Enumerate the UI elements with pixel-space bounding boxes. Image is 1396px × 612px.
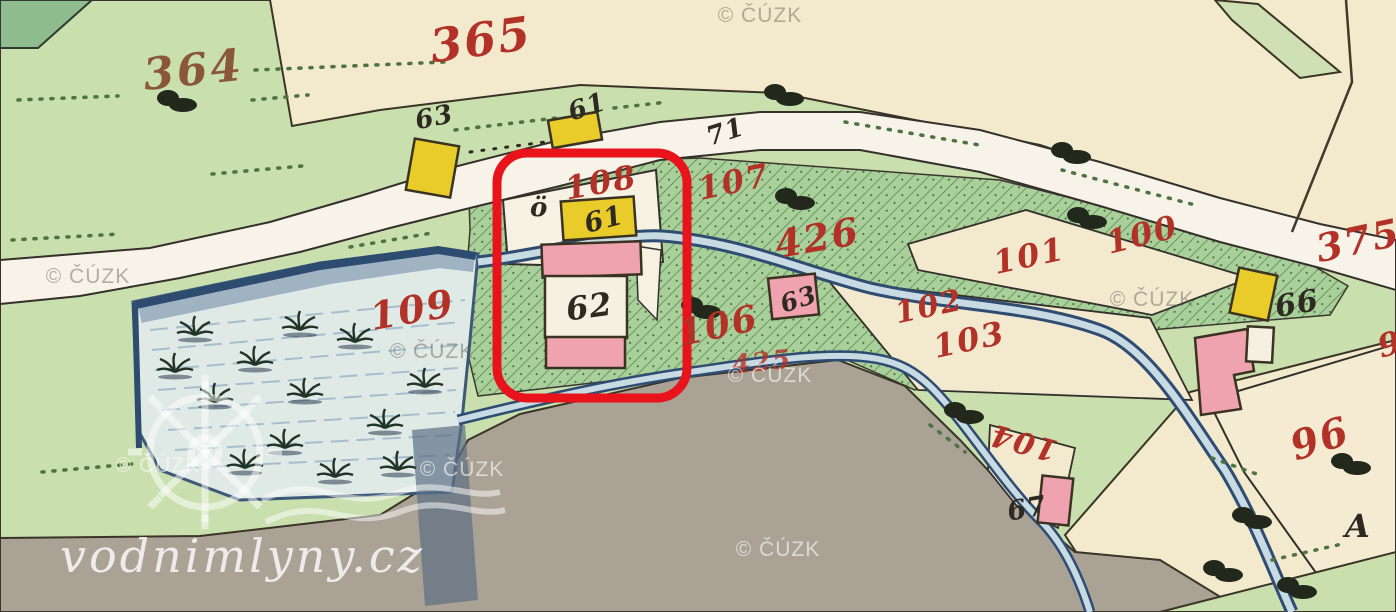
barn-63-yellow — [406, 139, 459, 198]
cuzk-watermark: © ČÚZK — [718, 4, 802, 27]
building-right-white — [1246, 326, 1274, 362]
cuzk-watermark: © ČÚZK — [1110, 288, 1194, 311]
cuzk-watermark: © ČÚZK — [728, 364, 812, 387]
cadastral-map: 364 365 108 107 426 109 106 425 102 103 … — [0, 0, 1396, 612]
parcel-label-364: 364 — [141, 40, 247, 101]
house-label-62: 62 — [564, 284, 615, 328]
house-label-o-umlaut: ö — [530, 193, 548, 223]
building-66-yellow — [1230, 268, 1278, 321]
cuzk-watermark: © ČÚZK — [390, 340, 474, 363]
mill-building-pink-upper — [541, 241, 641, 277]
cuzk-watermark: © ČÚZK — [420, 458, 504, 481]
house-label-66: 66 — [1272, 283, 1321, 325]
mill-building-pink-lower — [546, 337, 625, 368]
cuzk-watermark: © ČÚZK — [46, 265, 130, 288]
cuzk-watermark: © ČÚZK — [736, 538, 820, 561]
site-watermark: vodnimlyny.cz — [60, 529, 425, 583]
letter-label-A: A — [1342, 507, 1371, 545]
